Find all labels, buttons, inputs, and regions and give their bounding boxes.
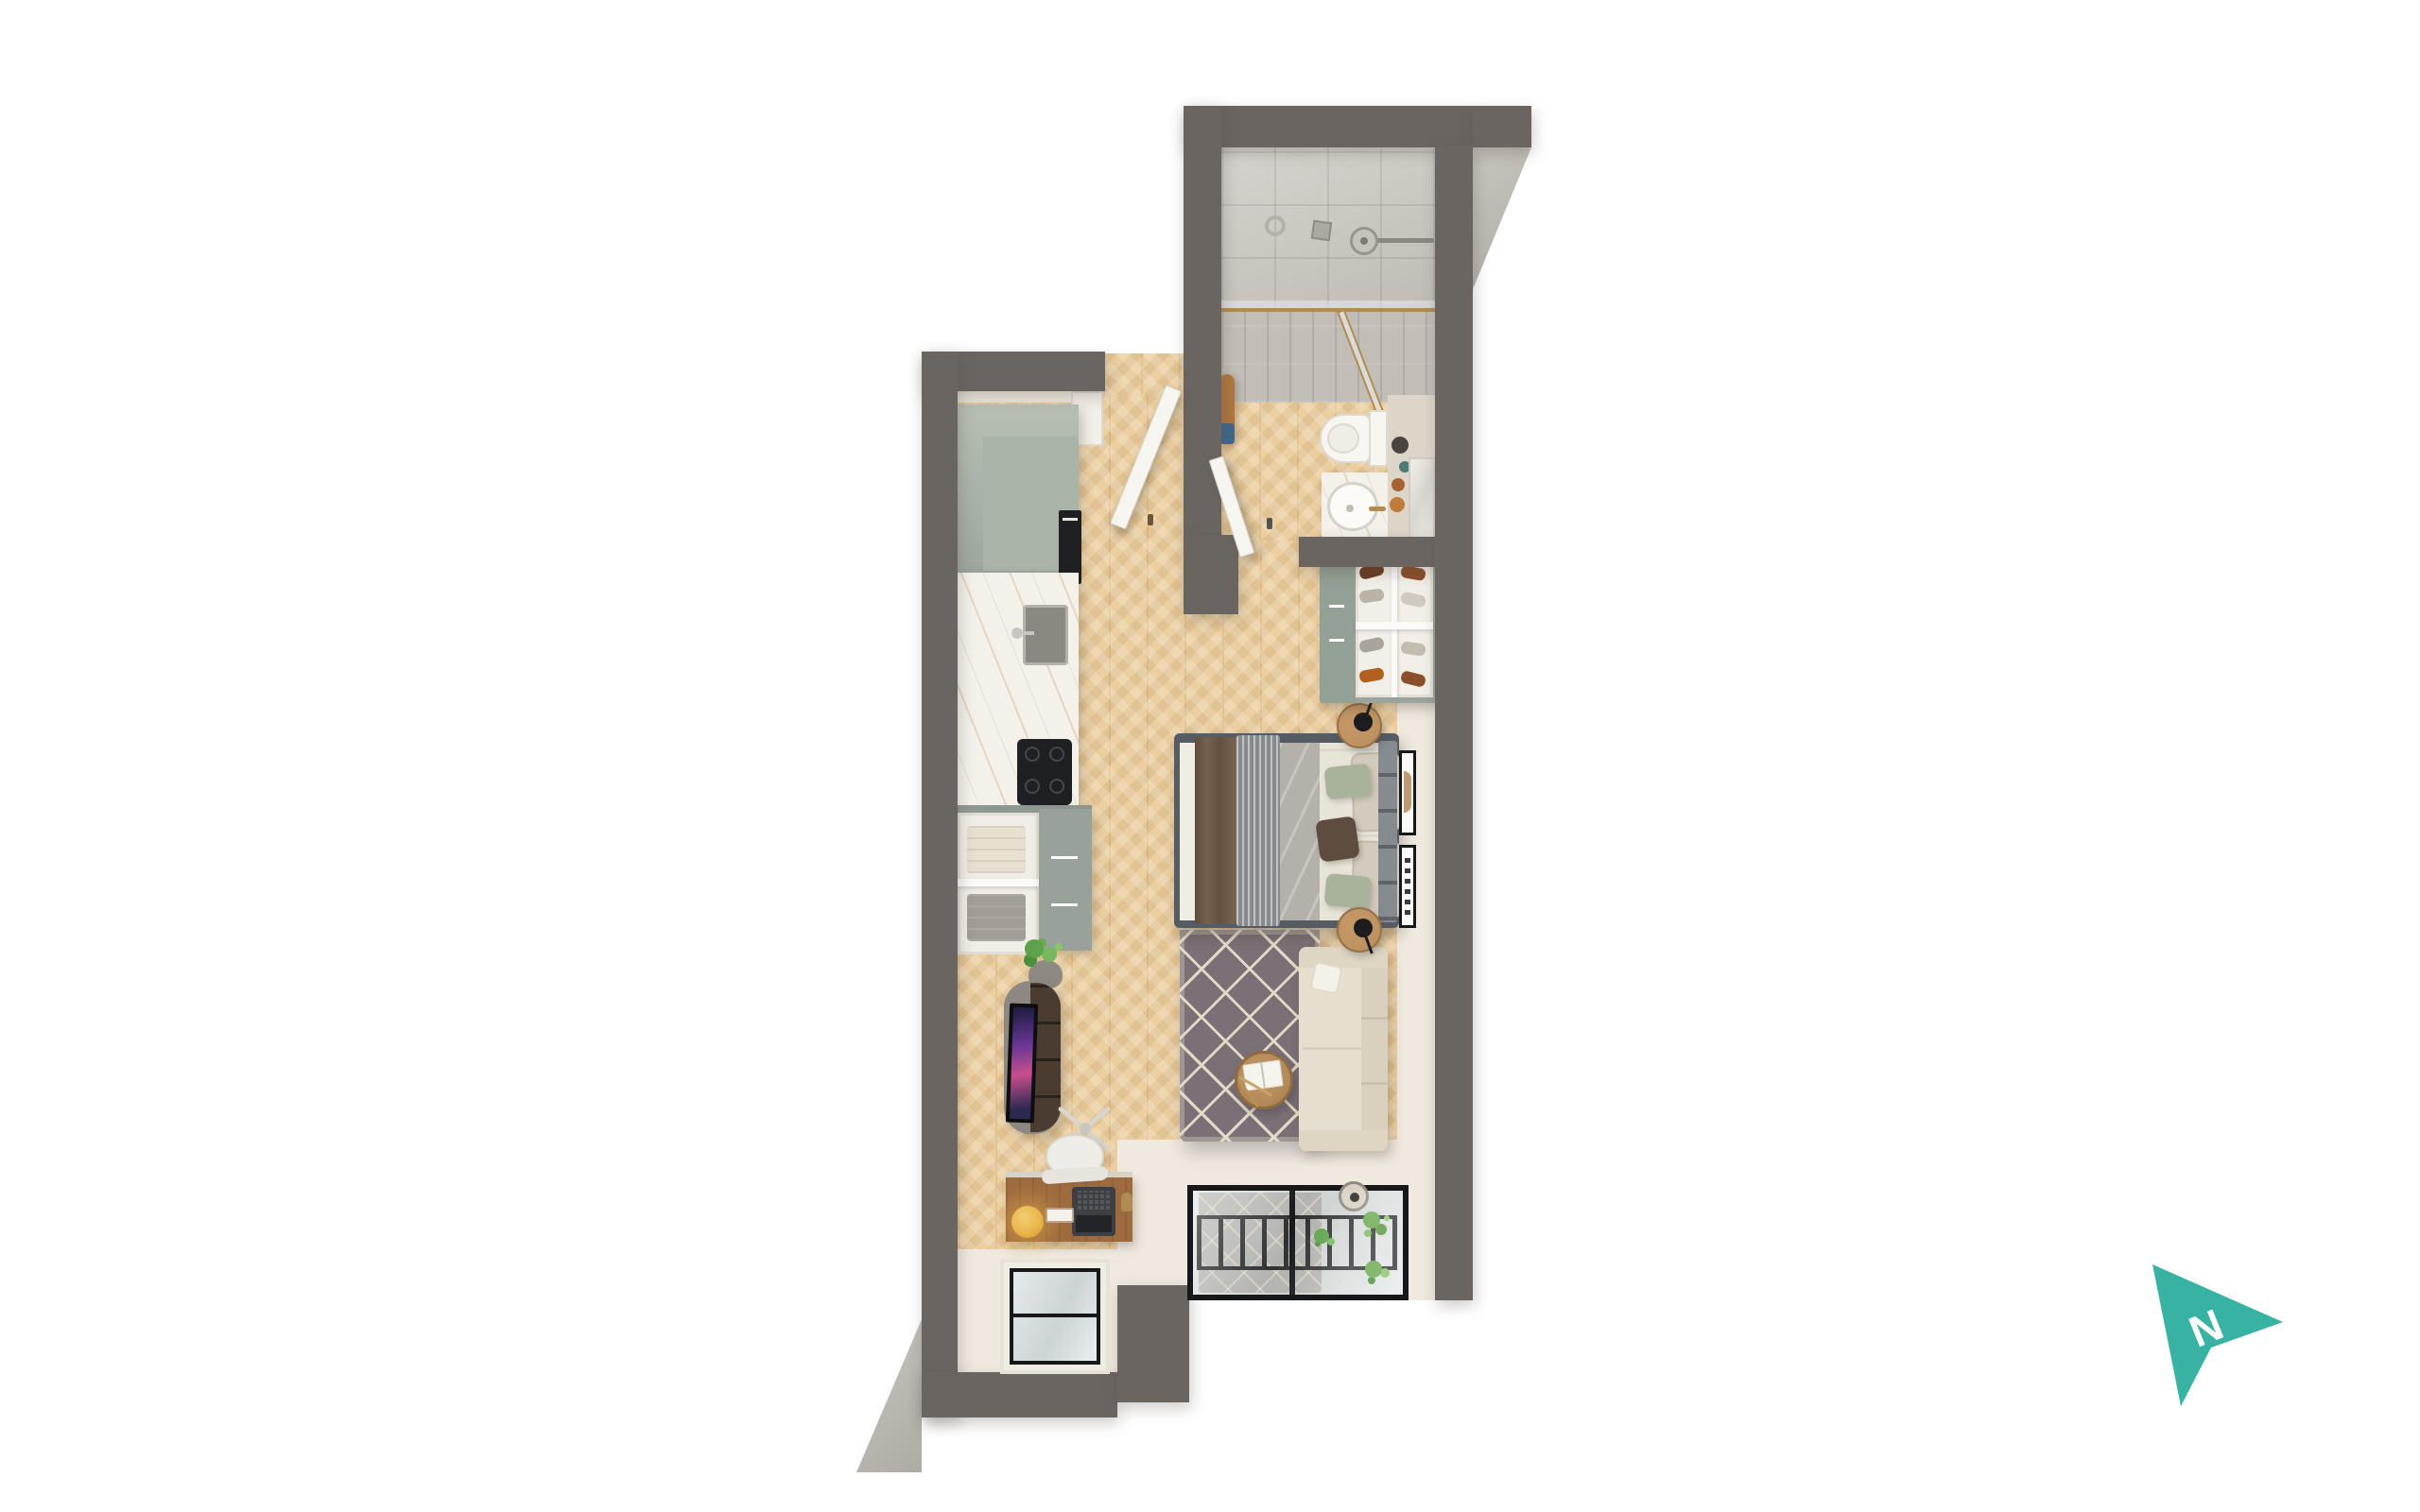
sofa-throw-pillow [1309,961,1343,995]
north-arrow: N [2146,1257,2297,1417]
shower-vent-grille [1311,220,1333,242]
shower-ceiling-light [1265,215,1286,236]
laptop-screen [1076,1215,1112,1232]
toilet-cistern [1369,410,1388,467]
bed-pillow-sage [1324,873,1373,909]
desk-lamp [1011,1206,1044,1238]
desk-figurine [1121,1193,1132,1211]
oven-handle [1063,518,1078,521]
bed-runner-striped [1236,735,1280,926]
wall-art-lines [1405,856,1410,915]
laptop-keyboard [1076,1191,1112,1211]
dresser-shelf-divider [958,879,1039,886]
sink-faucet-arm [1017,631,1034,635]
wardrobe-handle [1329,639,1344,642]
balcony-plant-icon [1365,1261,1382,1278]
cooktop-burner [1025,779,1040,794]
shower-head-center [1360,237,1368,245]
cooktop-burner [1049,779,1064,794]
toilet-seat [1327,423,1359,454]
balcony-planter-center [1350,1193,1359,1202]
wall-bottom-block [1117,1285,1189,1402]
balcony-plant-icon [1363,1211,1380,1228]
chair-hub [1080,1123,1091,1134]
balcony-sill [1117,1140,1435,1185]
headboard [1378,741,1397,922]
sofa-backrest [1361,951,1388,1147]
ledge-amber-jar [1390,497,1405,512]
bed-pillow-brown [1315,816,1360,862]
wall-bathroom-bottom [1299,537,1435,567]
bathroom-tile-strip [1221,312,1435,403]
wardrobe-drawer-front [1320,552,1356,703]
cooktop-burner [1025,747,1040,762]
wall-bathroom-top [1184,106,1473,147]
wall-art-abstract-shape [1404,771,1411,813]
sofa-armrest [1299,1130,1388,1151]
folded-clothes-grey [967,894,1026,941]
folded-clothes-beige [967,826,1026,873]
wall-bottom-left [922,1372,1117,1417]
basin-drain [1346,505,1354,512]
wardrobe-divider-h [1356,622,1433,629]
ledge-plant-pot [1391,437,1409,454]
drawer-handle [1051,903,1078,906]
inner-wall-band-top [958,391,1071,403]
wall-top-right-bump [1473,106,1531,147]
side-window-mullion [1010,1314,1100,1317]
outside-mask-below-balcony [1187,1300,1435,1395]
towel-blue [1219,423,1235,444]
balcony-door-divider [1289,1185,1295,1300]
kitchen-sink [1023,605,1068,665]
floor-plan-render: N [0,0,2420,1512]
sofa-armrest [1299,947,1388,968]
dresser-drawers [1039,809,1092,951]
wall-right [1435,146,1473,1300]
ledge-amber-bottle [1391,478,1405,491]
balcony-plant-icon [1314,1228,1329,1244]
wall-main-left [922,352,958,1417]
basin-faucet [1369,507,1386,511]
drawer-handle [1051,856,1078,859]
bathroom-mirror [1409,457,1435,541]
balcony-side-sill-right [1409,1185,1435,1300]
shower-arm [1375,238,1434,243]
bathroom-door-handle [1267,518,1272,529]
exterior-wall-face-top-right [1473,147,1531,289]
shower-glass-screen [1221,301,1435,312]
wardrobe-handle [1329,605,1344,608]
cooktop-burner [1049,747,1064,762]
bed-pillow-sage [1323,764,1372,800]
bed-sheet-grey [1280,743,1320,920]
desk-clock [1046,1208,1074,1223]
exterior-wall-face-bottom-left [856,1319,922,1472]
entry-door-handle [1148,514,1153,525]
tv-screen [1010,1007,1034,1120]
plant-icon [1025,939,1044,958]
bed-blanket-brown [1195,737,1236,924]
sofa-seat-seam [1303,1047,1361,1050]
wall-entry-step [1184,535,1238,614]
